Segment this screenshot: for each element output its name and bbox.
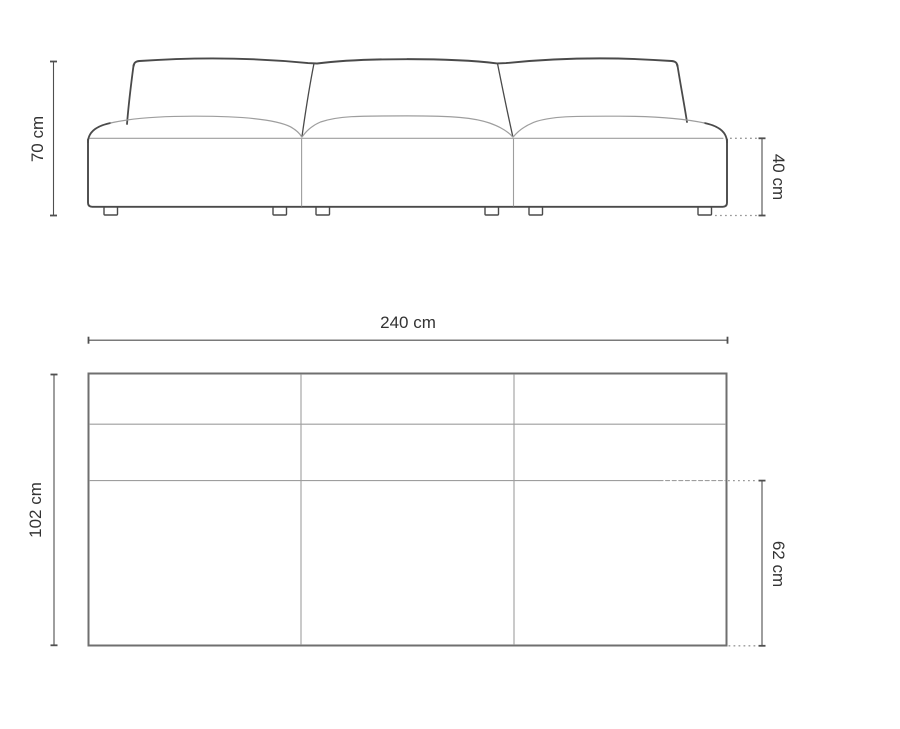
plan-width-dimension [89,337,728,344]
top-view [89,374,727,646]
sofa-legs [104,207,712,215]
sofa-technical-drawing: 70 cm 40 cm 240 cm 102 cm 62 cm [0,0,900,729]
plan-outline [89,374,727,646]
front-seat-height-dimension [715,138,766,215]
seat-corner-right [705,123,728,143]
base-outline [88,140,727,207]
leg [529,207,543,215]
leg [104,207,118,215]
leg [273,207,287,215]
plan-depth-dimension [51,375,58,646]
dim-label-total-width: 240 cm [348,313,468,333]
seat-cushion-middle [302,116,512,137]
leg [698,207,712,215]
backrest-right-edge [677,65,687,122]
backrest-left-edge [127,65,134,124]
plan-seat-depth-dimension [728,481,766,646]
backrest-top-edge [134,58,678,66]
seat-cushion-right [513,116,704,137]
backrest-seam-left [302,63,314,136]
leg [485,207,499,215]
seat-cushion-left [111,116,302,137]
dim-label-total-height: 70 cm [28,104,48,174]
drawing-canvas [0,0,900,729]
dim-label-seat-height: 40 cm [768,142,788,212]
front-height-dimension [50,62,57,216]
seat-corner-left [88,123,111,143]
dim-label-seat-depth: 62 cm [768,529,788,599]
front-view [88,58,727,215]
leg [316,207,330,215]
dim-label-total-depth: 102 cm [26,475,46,545]
backrest-seam-right [498,64,513,137]
